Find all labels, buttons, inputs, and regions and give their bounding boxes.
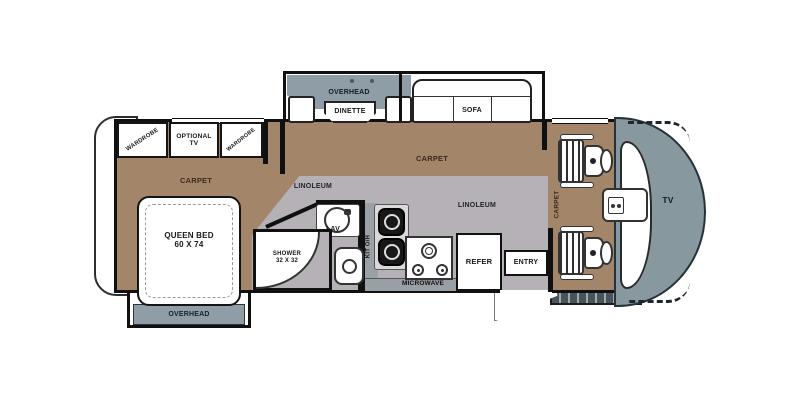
toilet-bowl: [342, 259, 357, 274]
linoleum-galley-label: LINOLEUM: [442, 202, 512, 210]
rv-floorplan: WARDROBE OPTIONAL TV WARDROBE CARPET OVE…: [0, 0, 800, 400]
driver-seat: [556, 134, 614, 190]
cooktop: [405, 236, 453, 280]
slide-divider-wall: [399, 74, 402, 121]
wardrobe-left-label: WARDROBE: [125, 127, 160, 153]
refrigerator: REFER: [456, 233, 502, 291]
bed-overhead-label: OVERHEAD: [168, 311, 209, 319]
entry-door-swing: [494, 291, 558, 321]
cabinet-vent-dot-1: [350, 79, 354, 83]
sofa-back-line: [414, 96, 530, 97]
shower-label: SHOWER32 X 32: [258, 251, 316, 264]
windshield-dash-top: [628, 121, 690, 143]
sink-drain-ring: [384, 214, 400, 230]
optional-tv-cabinet: OPTIONAL TV: [169, 122, 219, 158]
entry-threshold: [500, 290, 552, 294]
seat-back: [558, 139, 584, 183]
cab-divider-wall: [548, 228, 553, 292]
kitchen-sink-bowl-2: [378, 238, 405, 266]
optional-tv-label-line2: TV: [190, 140, 199, 147]
cab-side-window: [552, 118, 608, 124]
wardrobe-left: WARDROBE: [117, 122, 168, 158]
sink-drain-ring: [384, 244, 400, 260]
bedroom-carpet-label: CARPET: [161, 177, 231, 185]
bedroom-bath-wall: [280, 122, 285, 174]
entry-label: ENTRY: [514, 259, 538, 267]
seat-headrest: [600, 241, 613, 265]
burner-left: [412, 264, 424, 276]
queen-bed-mattress-outline: [145, 204, 233, 298]
kitchen-sink-bowl-1: [378, 208, 405, 236]
shower-room: SHOWER32 X 32: [253, 229, 332, 291]
wardrobe-right-label: WARDROBE: [226, 127, 257, 153]
lav-faucet: [344, 209, 351, 215]
sofa-label: SOFA: [414, 107, 530, 115]
dinette-bench-left: [288, 96, 315, 123]
wardrobe-end-wall: [263, 122, 268, 164]
bed-overhead-cabinet: OVERHEAD: [133, 304, 245, 325]
salon-carpet-label: CARPET: [397, 155, 467, 163]
dinette-overhead-label: OVERHEAD: [303, 89, 395, 97]
windshield-dash-bottom: [628, 281, 690, 303]
refrigerator-label: REFER: [466, 258, 492, 266]
seat-dot: [590, 158, 596, 164]
dinette-label: DINETTE: [318, 108, 382, 116]
linoleum-bath-label: LINOLEUM: [278, 183, 348, 191]
console-panel: [608, 197, 624, 214]
seat-dot: [590, 250, 596, 256]
queen-bed-label: QUEEN BED60 X 74: [139, 232, 239, 250]
toilet: [334, 247, 364, 285]
passenger-seat: [556, 226, 614, 282]
burner-right: [436, 264, 448, 276]
seat-headrest: [600, 149, 613, 173]
tv-label: TV: [650, 196, 686, 205]
cabinet-vent-dot-2: [370, 79, 374, 83]
optional-tv-label-line1: OPTIONAL: [176, 133, 211, 140]
microwave-label: MICROWAVE: [390, 280, 456, 287]
wardrobe-right: WARDROBE: [220, 122, 263, 158]
sofa: SOFA: [412, 79, 532, 123]
entry-landing: ENTRY: [504, 250, 548, 276]
engine-console: [602, 188, 648, 222]
slide-end-wall: [542, 120, 547, 150]
seat-back: [558, 231, 584, 275]
queen-bed: QUEEN BED60 X 74: [137, 196, 241, 306]
burner-large: [421, 243, 437, 259]
